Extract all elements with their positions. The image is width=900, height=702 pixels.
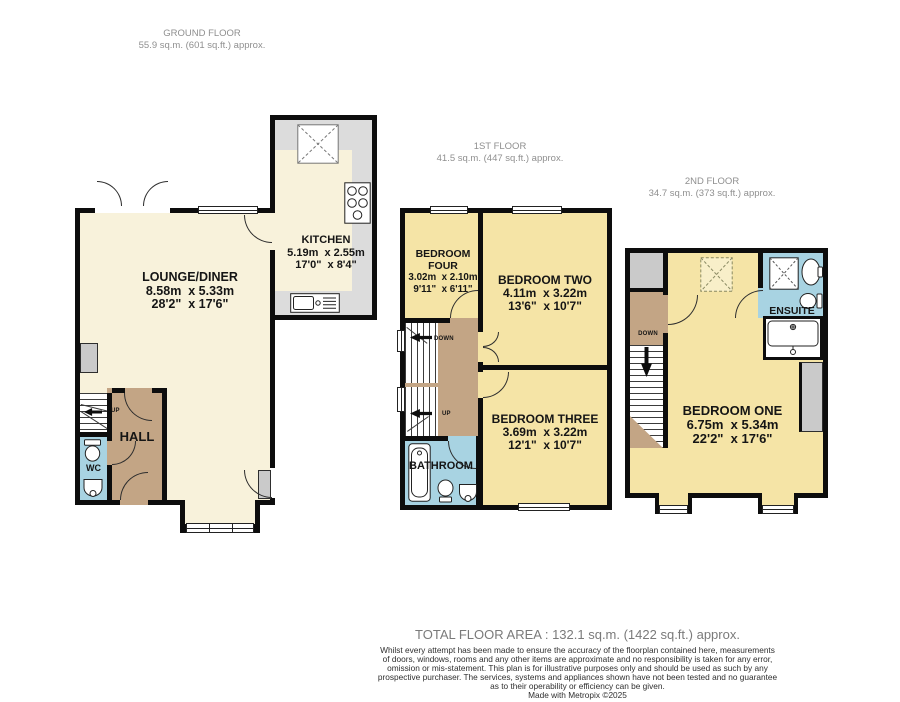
window-recess bbox=[762, 493, 794, 505]
floor-area: 55.9 sq.m. (601 sq.ft.) approx. bbox=[102, 40, 302, 52]
window bbox=[397, 330, 405, 352]
stairs-down-label: DOWN bbox=[434, 336, 454, 342]
window bbox=[397, 387, 405, 412]
wall bbox=[625, 248, 828, 253]
wc-label: WC bbox=[80, 463, 107, 473]
footer-credit: Made with Metropix ©2025 bbox=[320, 691, 835, 700]
wall bbox=[688, 493, 692, 514]
bedroom-two-label: BEDROOM TWO 4.11m x 3.22m 13'6" x 10'7" bbox=[485, 274, 605, 313]
hob-icon bbox=[344, 182, 371, 224]
lounge-diner-label: LOUNGE/DINER 8.58m x 5.33m 28'2" x 17'6" bbox=[110, 271, 270, 312]
room-name: BEDROOM FOUR bbox=[407, 249, 479, 272]
bedroom-four-label: BEDROOM FOUR 3.02m x 2.10m 9'11" x 6'11" bbox=[407, 249, 479, 295]
floor-title: 1ST FLOOR bbox=[400, 141, 600, 153]
window bbox=[518, 503, 570, 511]
toilet-icon bbox=[82, 439, 103, 462]
room-dims-imperial: 12'1" x 10'7" bbox=[485, 439, 605, 452]
room-dims-imperial: 9'11" x 6'11" bbox=[407, 284, 479, 296]
window bbox=[659, 505, 688, 514]
sink-icon bbox=[801, 257, 823, 287]
window-recess bbox=[659, 493, 688, 505]
wall bbox=[794, 493, 798, 514]
stairs-up-label: UP bbox=[442, 411, 451, 417]
ground-floor-title: GROUND FLOOR 55.9 sq.m. (601 sq.ft.) app… bbox=[102, 28, 302, 51]
room-dims-imperial: 22'2" x 17'6" bbox=[660, 432, 805, 446]
room-name: LOUNGE/DINER bbox=[110, 271, 270, 285]
stairs-down-flight bbox=[405, 323, 438, 383]
wall bbox=[162, 388, 167, 500]
window bbox=[762, 505, 794, 514]
wall bbox=[625, 248, 630, 498]
bay-window-glazing bbox=[186, 523, 254, 533]
wall bbox=[270, 115, 377, 120]
skylight-icon bbox=[700, 257, 733, 292]
door-arc bbox=[97, 181, 122, 206]
stairs-up-label: UP bbox=[111, 408, 120, 414]
room-dims-metric: 6.75m x 5.34m bbox=[660, 418, 805, 432]
ensuite-label: ENSUITE bbox=[761, 305, 823, 317]
landing bbox=[630, 292, 663, 345]
bedroom-three-label: BEDROOM THREE 3.69m x 3.22m 12'1" x 10'7… bbox=[485, 413, 605, 452]
wall bbox=[400, 505, 612, 510]
wall bbox=[372, 115, 377, 320]
stairs-down-label: DOWN bbox=[634, 331, 662, 337]
hall-label: HALL bbox=[112, 429, 162, 444]
window-mullion bbox=[209, 524, 210, 532]
wall bbox=[80, 432, 112, 437]
bathroom-label: BATHROOM bbox=[406, 460, 476, 472]
floor-title: 2ND FLOOR bbox=[612, 176, 812, 188]
floor-area: 34.7 sq.m. (373 sq.ft.) approx. bbox=[612, 188, 812, 200]
door-opening bbox=[95, 208, 170, 213]
room-dims-imperial: 13'6" x 10'7" bbox=[485, 300, 605, 313]
room-name: KITCHEN bbox=[276, 234, 376, 247]
toilet-icon bbox=[435, 479, 456, 503]
sink-icon bbox=[82, 478, 104, 498]
first-floor-title: 1ST FLOOR 41.5 sq.m. (447 sq.ft.) approx… bbox=[400, 141, 600, 164]
kitchen-label: KITCHEN 5.19m x 2.55m 17'0" x 8'4" bbox=[276, 234, 376, 272]
second-floor-title: 2ND FLOOR 34.7 sq.m. (373 sq.ft.) approx… bbox=[612, 176, 812, 199]
room-dims-metric: 3.02m x 2.10m bbox=[407, 272, 479, 284]
wall bbox=[75, 208, 80, 505]
footer: TOTAL FLOOR AREA : 132.1 sq.m. (1422 sq.… bbox=[320, 627, 835, 700]
ensuite-bath bbox=[763, 316, 823, 360]
wall bbox=[400, 208, 405, 510]
window-mullion bbox=[232, 524, 233, 532]
window bbox=[512, 206, 562, 214]
bedroom-one-label: BEDROOM ONE 6.75m x 5.34m 22'2" x 17'6" bbox=[660, 404, 805, 446]
kitchen-sink-icon bbox=[290, 293, 340, 313]
room-dims-imperial: 17'0" x 8'4" bbox=[276, 259, 376, 272]
shower-icon bbox=[769, 257, 799, 290]
wall bbox=[478, 365, 612, 370]
footer-total: TOTAL FLOOR AREA : 132.1 sq.m. (1422 sq.… bbox=[320, 627, 835, 642]
wall bbox=[254, 524, 260, 533]
bath-icon bbox=[408, 443, 431, 502]
wall bbox=[270, 208, 275, 505]
wall bbox=[270, 115, 275, 208]
wall bbox=[823, 248, 828, 498]
eaves-storage bbox=[630, 253, 663, 290]
door-arc bbox=[143, 181, 168, 206]
floor-area: 41.5 sq.m. (447 sq.ft.) approx. bbox=[400, 153, 600, 165]
door-opening bbox=[450, 318, 478, 323]
floorplan-page: GROUND FLOOR 55.9 sq.m. (601 sq.ft.) app… bbox=[0, 0, 900, 702]
skylight-icon bbox=[297, 124, 339, 164]
room-dims-metric: 5.19m x 2.55m bbox=[276, 247, 376, 260]
sink-icon bbox=[458, 483, 478, 503]
room-dims-imperial: 28'2" x 17'6" bbox=[110, 298, 270, 312]
floor-title: GROUND FLOOR bbox=[102, 28, 302, 40]
door-opening bbox=[120, 500, 148, 505]
bath-icon bbox=[766, 319, 820, 357]
wall bbox=[270, 315, 377, 320]
window bbox=[198, 206, 258, 214]
wall bbox=[607, 208, 612, 510]
room-dims-metric: 8.58m x 5.33m bbox=[110, 285, 270, 299]
room-name: BEDROOM ONE bbox=[660, 404, 805, 418]
chimney-breast bbox=[80, 343, 98, 373]
window bbox=[430, 206, 468, 214]
door-opening bbox=[185, 500, 255, 505]
